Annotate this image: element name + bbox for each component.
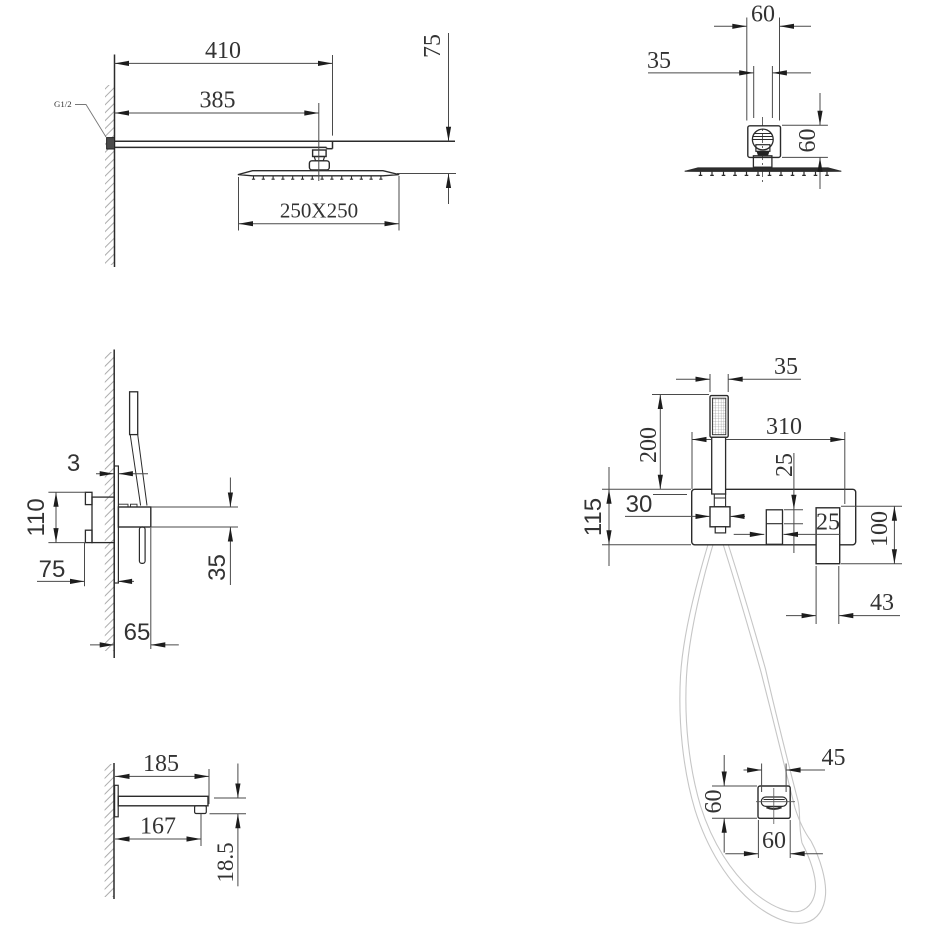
svg-text:100: 100 (867, 511, 893, 547)
svg-text:60: 60 (762, 828, 786, 854)
svg-text:65: 65 (124, 619, 151, 646)
svg-text:310: 310 (766, 414, 802, 440)
svg-text:385: 385 (200, 88, 236, 114)
svg-text:167: 167 (140, 814, 176, 840)
svg-text:410: 410 (205, 38, 241, 64)
svg-text:60: 60 (701, 790, 727, 814)
svg-text:200: 200 (636, 427, 662, 463)
svg-text:3: 3 (67, 450, 80, 477)
svg-text:18.5: 18.5 (213, 842, 238, 882)
svg-text:30: 30 (626, 491, 653, 518)
svg-text:60: 60 (751, 2, 775, 28)
svg-text:115: 115 (580, 498, 607, 536)
svg-text:25: 25 (772, 453, 798, 477)
svg-text:45: 45 (822, 745, 846, 771)
svg-text:43: 43 (870, 590, 894, 616)
svg-text:75: 75 (39, 556, 66, 583)
svg-text:110: 110 (23, 498, 50, 536)
svg-text:75: 75 (420, 34, 446, 58)
svg-text:185: 185 (143, 751, 179, 777)
svg-text:60: 60 (795, 129, 821, 153)
svg-text:250X250: 250X250 (280, 199, 358, 223)
svg-text:35: 35 (774, 354, 798, 380)
svg-text:35: 35 (647, 48, 671, 74)
svg-text:35: 35 (204, 554, 231, 581)
svg-text:G1/2: G1/2 (54, 99, 72, 109)
svg-text:25: 25 (816, 510, 840, 536)
